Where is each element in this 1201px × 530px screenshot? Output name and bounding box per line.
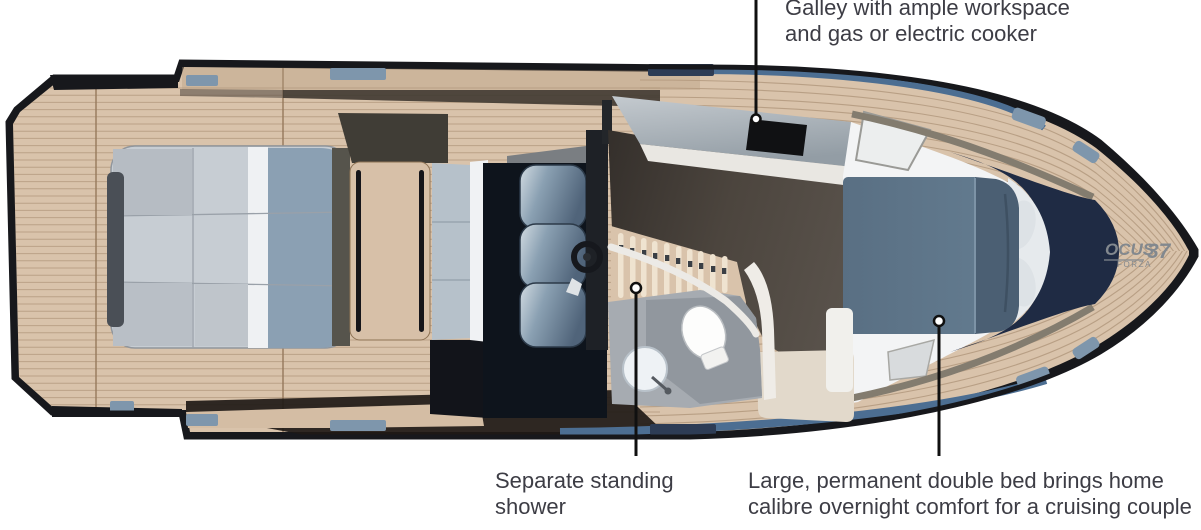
svg-text:FORZA: FORZA xyxy=(1117,260,1152,269)
